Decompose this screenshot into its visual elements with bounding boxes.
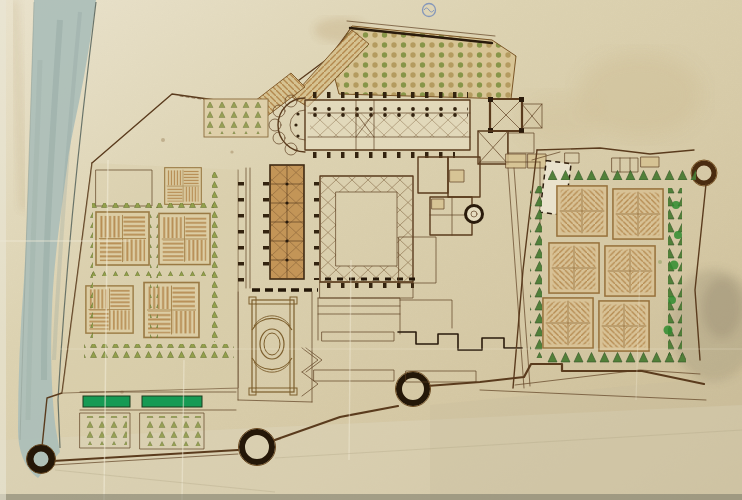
photograph-of-historic-plan (0, 0, 742, 500)
stair-turret (466, 206, 483, 223)
plan-drawing (0, 0, 742, 500)
north-buttresses (312, 92, 468, 98)
green-pond (83, 396, 130, 407)
small-orchard-plot (204, 99, 268, 137)
green-pond (142, 396, 202, 407)
